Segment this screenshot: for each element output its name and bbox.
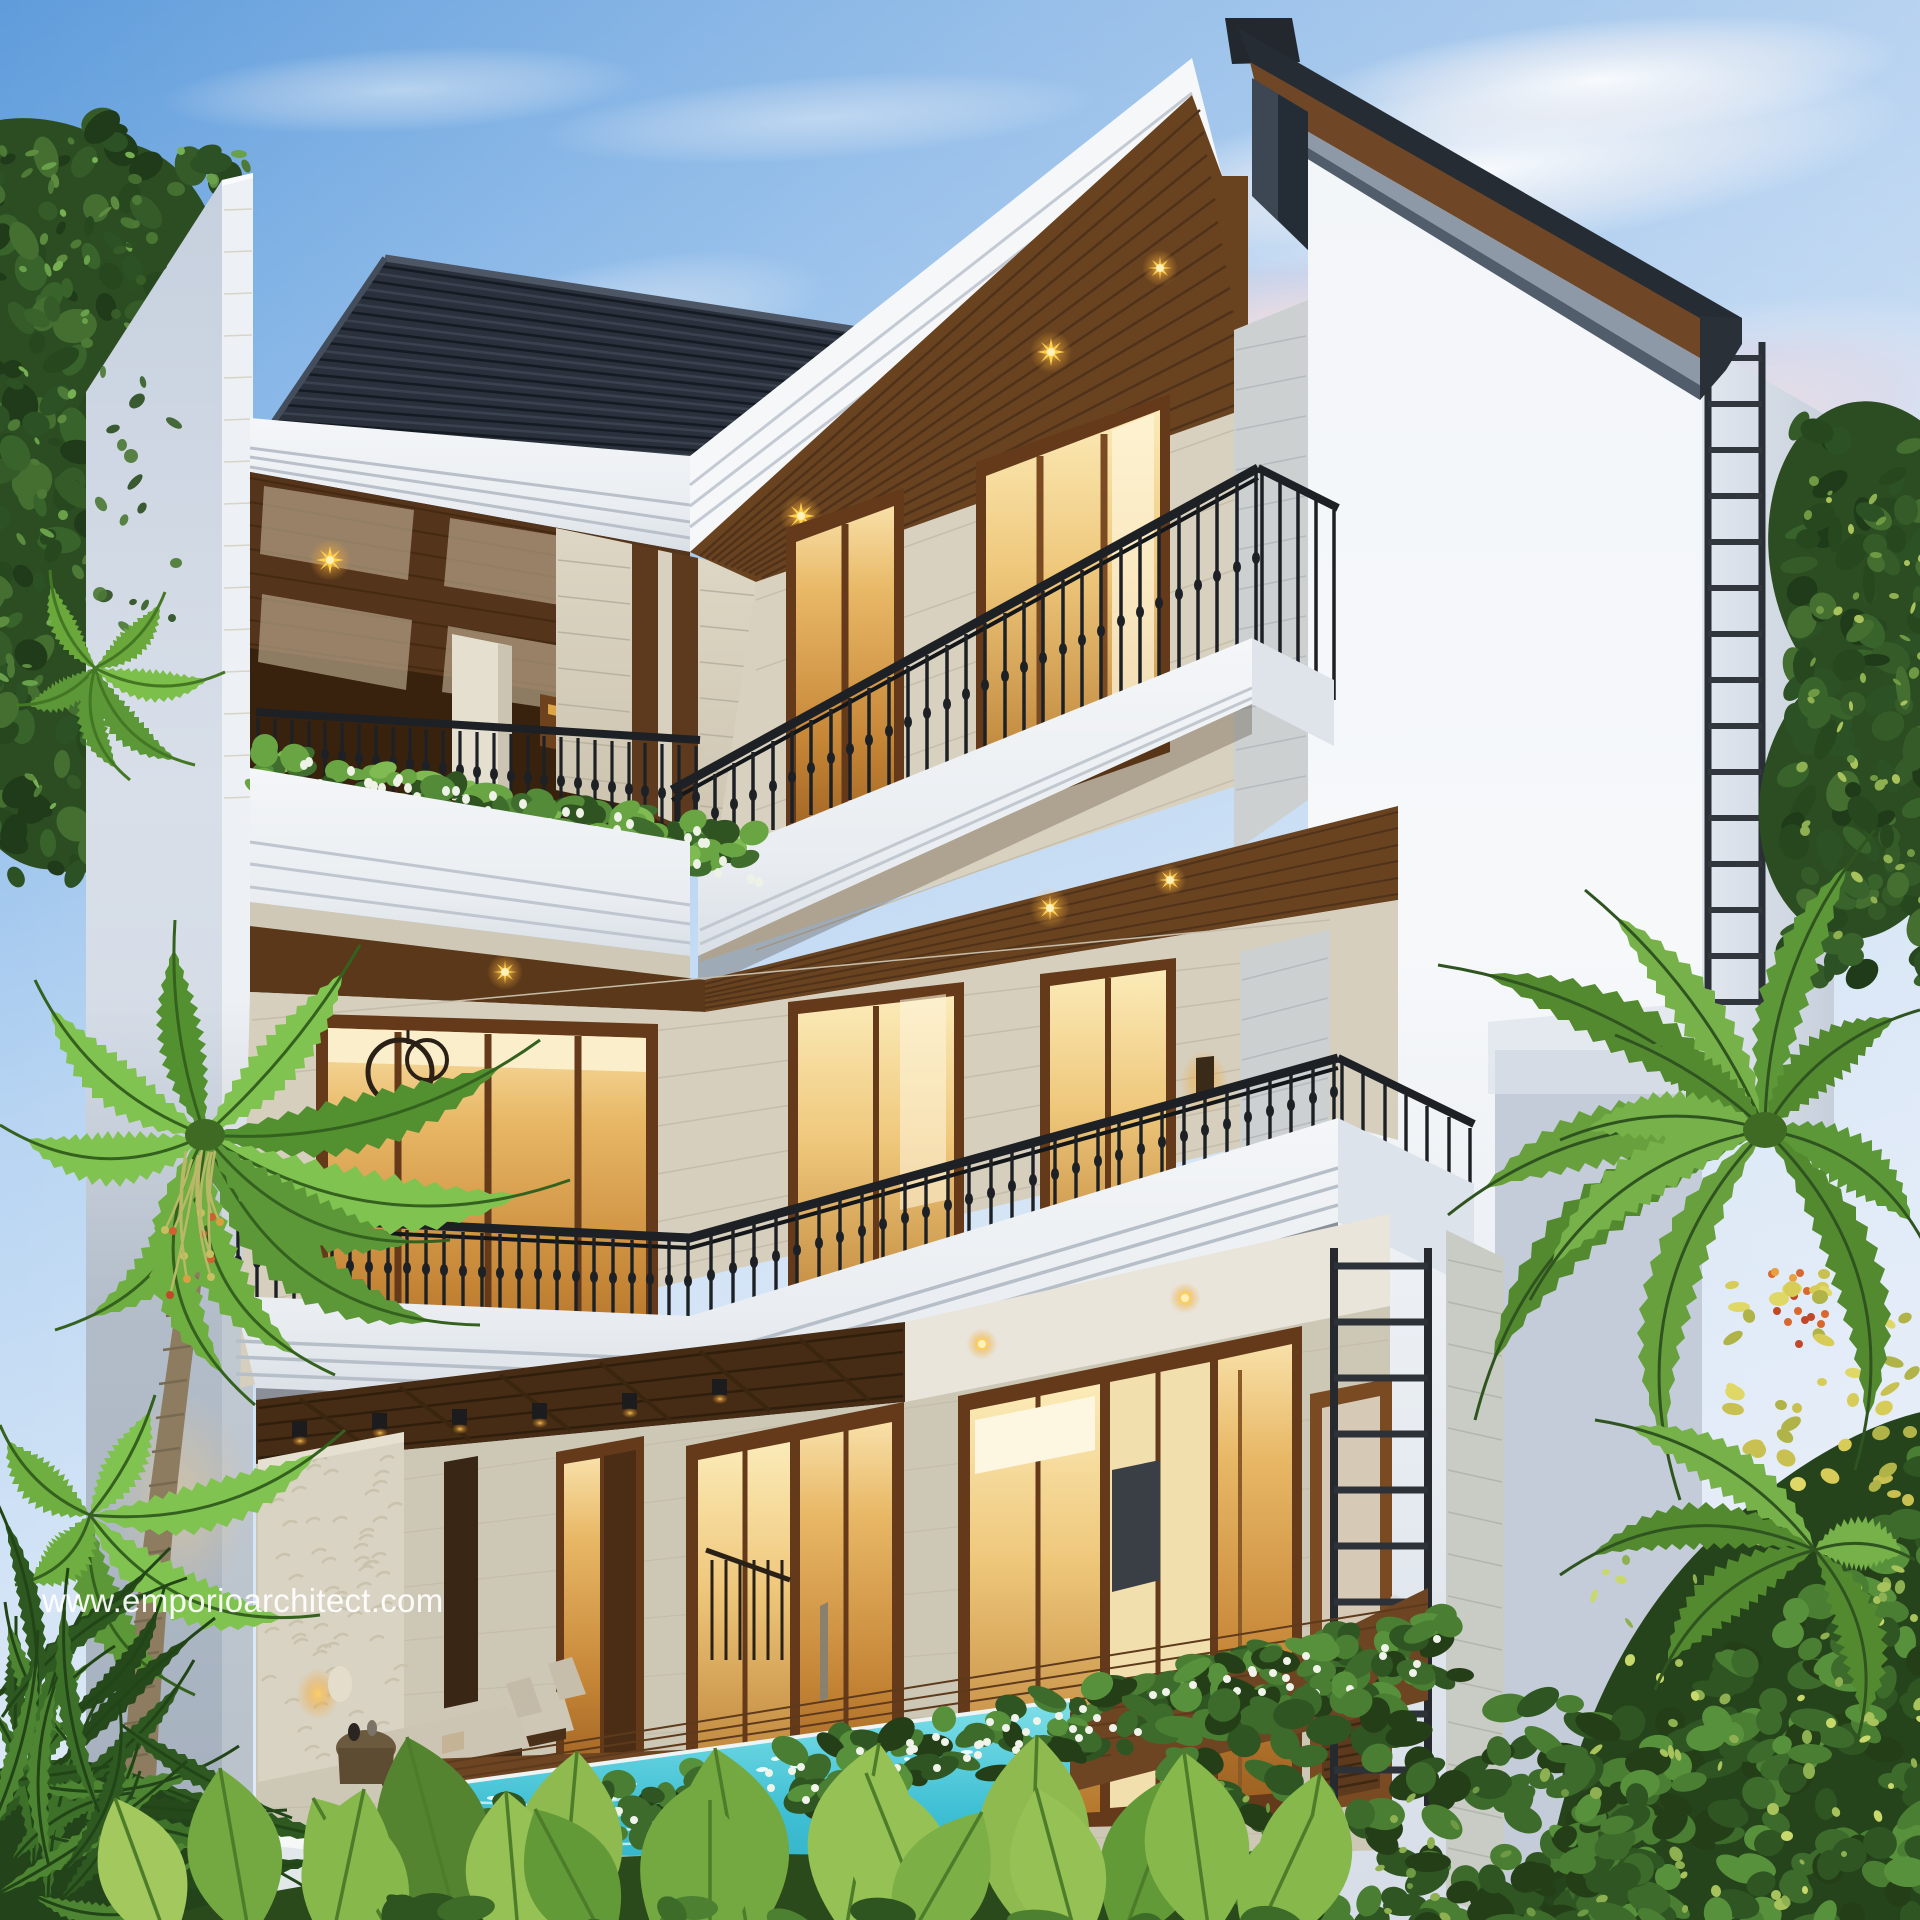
- svg-text:www.emporioarchitect.com: www.emporioarchitect.com: [41, 1582, 444, 1619]
